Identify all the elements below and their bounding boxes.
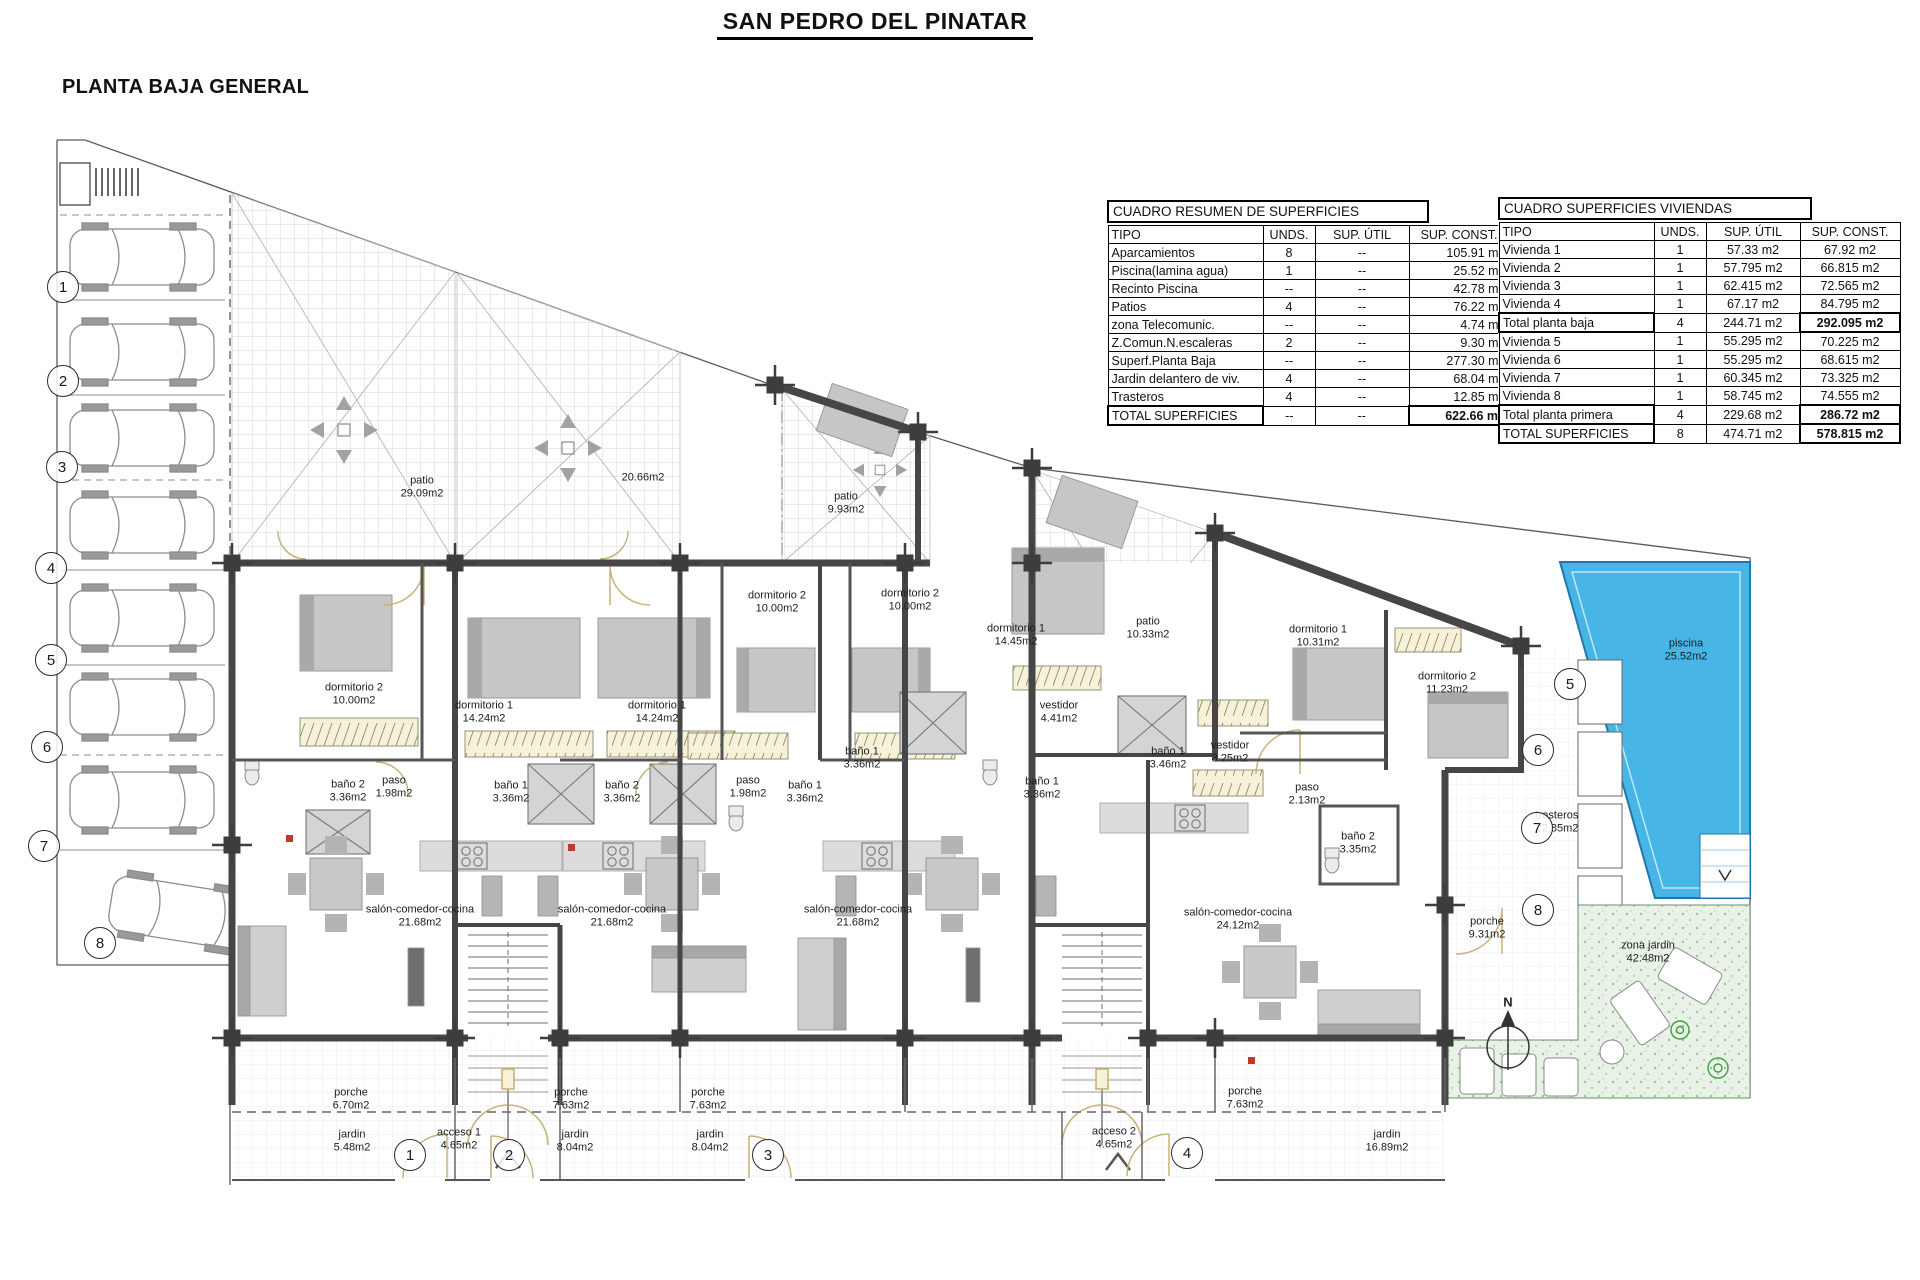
dwellings-table-title: CUADRO SUPERFICIES VIVIENDAS [1498,197,1812,220]
util-cell: 474.71 m2 [1706,424,1800,443]
const-cell: 12.85 m2 [1409,388,1509,407]
const-cell: 42.78 m2 [1409,280,1509,298]
util-cell: 62.415 m2 [1706,277,1800,295]
util-cell: 57.795 m2 [1706,259,1800,277]
table-row: Vivienda 5155.295 m270.225 m2 [1499,332,1900,351]
const-cell: 4.74 m2 [1409,316,1509,334]
column-header: UNDS. [1654,223,1706,241]
table-row: Vivienda 2157.795 m266.815 m2 [1499,259,1900,277]
util-cell: 229.68 m2 [1706,405,1800,424]
table-row: Total planta primera4229.68 m2286.72 m2 [1499,405,1900,424]
util-cell: -- [1315,334,1409,352]
tipo-cell: Recinto Piscina [1108,280,1263,298]
unds-cell: 8 [1654,424,1706,443]
unit-number-marker: 2 [47,365,79,397]
tipo-cell: Aparcamientos [1108,244,1263,262]
table-row: Jardin delantero de viv.4--68.04 m2 [1108,370,1509,388]
unit-number-marker: 3 [46,451,78,483]
tipo-cell: Vivienda 5 [1499,332,1654,351]
unds-cell: 1 [1654,387,1706,406]
unds-cell: 1 [1263,262,1315,280]
const-cell: 105.91 m2 [1409,244,1509,262]
unds-cell: 4 [1654,313,1706,332]
table-row: Z.Comun.N.escaleras2--9.30 m2 [1108,334,1509,352]
unit-number-marker: 2 [493,1139,525,1171]
unit-number-marker: 7 [1521,812,1553,844]
unds-cell: 1 [1654,369,1706,387]
unds-cell: -- [1263,352,1315,370]
tipo-cell: Vivienda 8 [1499,387,1654,406]
util-cell: 58.745 m2 [1706,387,1800,406]
floorplan-sheet: { "page": { "title": "SAN PEDRO DEL PINA… [0,0,1920,1280]
tipo-cell: Total planta baja [1499,313,1654,332]
table-row: Total planta baja4244.71 m2292.095 m2 [1499,313,1900,332]
util-cell: 67.17 m2 [1706,295,1800,314]
util-cell: -- [1315,388,1409,407]
util-cell: -- [1315,316,1409,334]
unit-number-marker: 8 [1522,894,1554,926]
table-row: Vivienda 1157.33 m267.92 m2 [1499,241,1900,259]
unit-number-marker: 5 [1554,668,1586,700]
trasteros-cells [1578,660,1622,940]
const-cell: 578.815 m2 [1800,424,1900,443]
util-cell: -- [1315,262,1409,280]
dwellings-table: CUADRO SUPERFICIES VIVIENDAS TIPOUNDS.SU… [1498,197,1901,444]
util-cell: 60.345 m2 [1706,369,1800,387]
table-row: Trasteros4--12.85 m2 [1108,388,1509,407]
column-header: SUP. CONST. [1409,226,1509,244]
unit-number-marker: 4 [35,552,67,584]
unit-number-marker: 4 [1171,1137,1203,1169]
unds-cell: 1 [1654,295,1706,314]
table-row: Patios4--76.22 m2 [1108,298,1509,316]
const-cell: 68.615 m2 [1800,351,1900,369]
util-cell: -- [1315,244,1409,262]
tipo-cell: Vivienda 2 [1499,259,1654,277]
unit-number-marker: 6 [31,731,63,763]
pool-steps-icon [1700,834,1750,898]
tipo-cell: Trasteros [1108,388,1263,407]
tipo-cell: Z.Comun.N.escaleras [1108,334,1263,352]
const-cell: 84.795 m2 [1800,295,1900,314]
unds-cell: 1 [1654,332,1706,351]
tipo-cell: Vivienda 4 [1499,295,1654,314]
unds-cell: 1 [1654,241,1706,259]
plan-subtitle: PLANTA BAJA GENERAL [62,76,309,99]
tipo-cell: Vivienda 3 [1499,277,1654,295]
summary-table-title: CUADRO RESUMEN DE SUPERFICIES [1107,200,1429,223]
unds-cell: 4 [1263,388,1315,407]
const-cell: 292.095 m2 [1800,313,1900,332]
unds-cell: 1 [1654,277,1706,295]
util-cell: -- [1315,370,1409,388]
const-cell: 277.30 m2 [1409,352,1509,370]
unds-cell: 1 [1654,259,1706,277]
tipo-cell: zona Telecomunic. [1108,316,1263,334]
dwellings-table-grid: TIPOUNDS.SUP. ÚTILSUP. CONST. Vivienda 1… [1498,222,1901,444]
table-row: Vivienda 4167.17 m284.795 m2 [1499,295,1900,314]
column-header: UNDS. [1263,226,1315,244]
util-cell: -- [1315,280,1409,298]
const-cell: 9.30 m2 [1409,334,1509,352]
util-cell: -- [1315,352,1409,370]
const-cell: 622.66 m2 [1409,406,1509,425]
table-row: Superf.Planta Baja----277.30 m2 [1108,352,1509,370]
unds-cell: 8 [1263,244,1315,262]
tipo-cell: Superf.Planta Baja [1108,352,1263,370]
const-cell: 73.325 m2 [1800,369,1900,387]
unit-number-marker: 7 [28,830,60,862]
const-cell: 286.72 m2 [1800,405,1900,424]
tipo-cell: Vivienda 6 [1499,351,1654,369]
unds-cell: 4 [1654,405,1706,424]
table-row: Recinto Piscina----42.78 m2 [1108,280,1509,298]
const-cell: 70.225 m2 [1800,332,1900,351]
unds-cell: -- [1263,406,1315,425]
tipo-cell: Piscina(lamina agua) [1108,262,1263,280]
summary-table-grid: TIPOUNDS.SUP. ÚTILSUP. CONST. Aparcamien… [1107,225,1510,426]
unit-number-marker: 3 [752,1139,784,1171]
column-header: TIPO [1108,226,1263,244]
table-row: zona Telecomunic.----4.74 m2 [1108,316,1509,334]
column-header: SUP. ÚTIL [1706,223,1800,241]
util-cell: 244.71 m2 [1706,313,1800,332]
table-row: TOTAL SUPERFICIES8474.71 m2578.815 m2 [1499,424,1900,443]
tipo-cell: TOTAL SUPERFICIES [1108,406,1263,425]
unds-cell: -- [1263,280,1315,298]
unds-cell: 2 [1263,334,1315,352]
const-cell: 66.815 m2 [1800,259,1900,277]
unit-number-marker: 6 [1522,734,1554,766]
const-cell: 72.565 m2 [1800,277,1900,295]
util-cell: 55.295 m2 [1706,351,1800,369]
util-cell: -- [1315,406,1409,425]
tipo-cell: TOTAL SUPERFICIES [1499,424,1654,443]
tipo-cell: Jardin delantero de viv. [1108,370,1263,388]
table-row: Vivienda 3162.415 m272.565 m2 [1499,277,1900,295]
floorplan-drawing [0,0,1920,1280]
unds-cell: 4 [1263,370,1315,388]
const-cell: 67.92 m2 [1800,241,1900,259]
unds-cell: 4 [1263,298,1315,316]
summary-table: CUADRO RESUMEN DE SUPERFICIES TIPOUNDS.S… [1107,200,1510,426]
tipo-cell: Patios [1108,298,1263,316]
north-label: N [1503,995,1512,1010]
column-header: TIPO [1499,223,1654,241]
column-header: SUP. CONST. [1800,223,1900,241]
util-cell: 57.33 m2 [1706,241,1800,259]
unds-cell: -- [1263,316,1315,334]
ramp-hatch-icon [96,168,138,196]
table-row: Piscina(lamina agua)1--25.52 m2 [1108,262,1509,280]
unit-number-marker: 1 [394,1139,426,1171]
tipo-cell: Total planta primera [1499,405,1654,424]
unit-number-marker: 5 [35,644,67,676]
column-header: SUP. ÚTIL [1315,226,1409,244]
unit-number-marker: 8 [84,927,116,959]
table-row: Vivienda 8158.745 m274.555 m2 [1499,387,1900,406]
page-title: SAN PEDRO DEL PINATAR [640,8,1110,40]
tipo-cell: Vivienda 1 [1499,241,1654,259]
table-row: Aparcamientos8--105.91 m2 [1108,244,1509,262]
const-cell: 76.22 m2 [1409,298,1509,316]
const-cell: 25.52 m2 [1409,262,1509,280]
unit-number-marker: 1 [47,271,79,303]
table-row: Vivienda 7160.345 m273.325 m2 [1499,369,1900,387]
const-cell: 74.555 m2 [1800,387,1900,406]
unds-cell: 1 [1654,351,1706,369]
table-row: TOTAL SUPERFICIES----622.66 m2 [1108,406,1509,425]
const-cell: 68.04 m2 [1409,370,1509,388]
util-cell: 55.295 m2 [1706,332,1800,351]
tipo-cell: Vivienda 7 [1499,369,1654,387]
table-row: Vivienda 6155.295 m268.615 m2 [1499,351,1900,369]
util-cell: -- [1315,298,1409,316]
